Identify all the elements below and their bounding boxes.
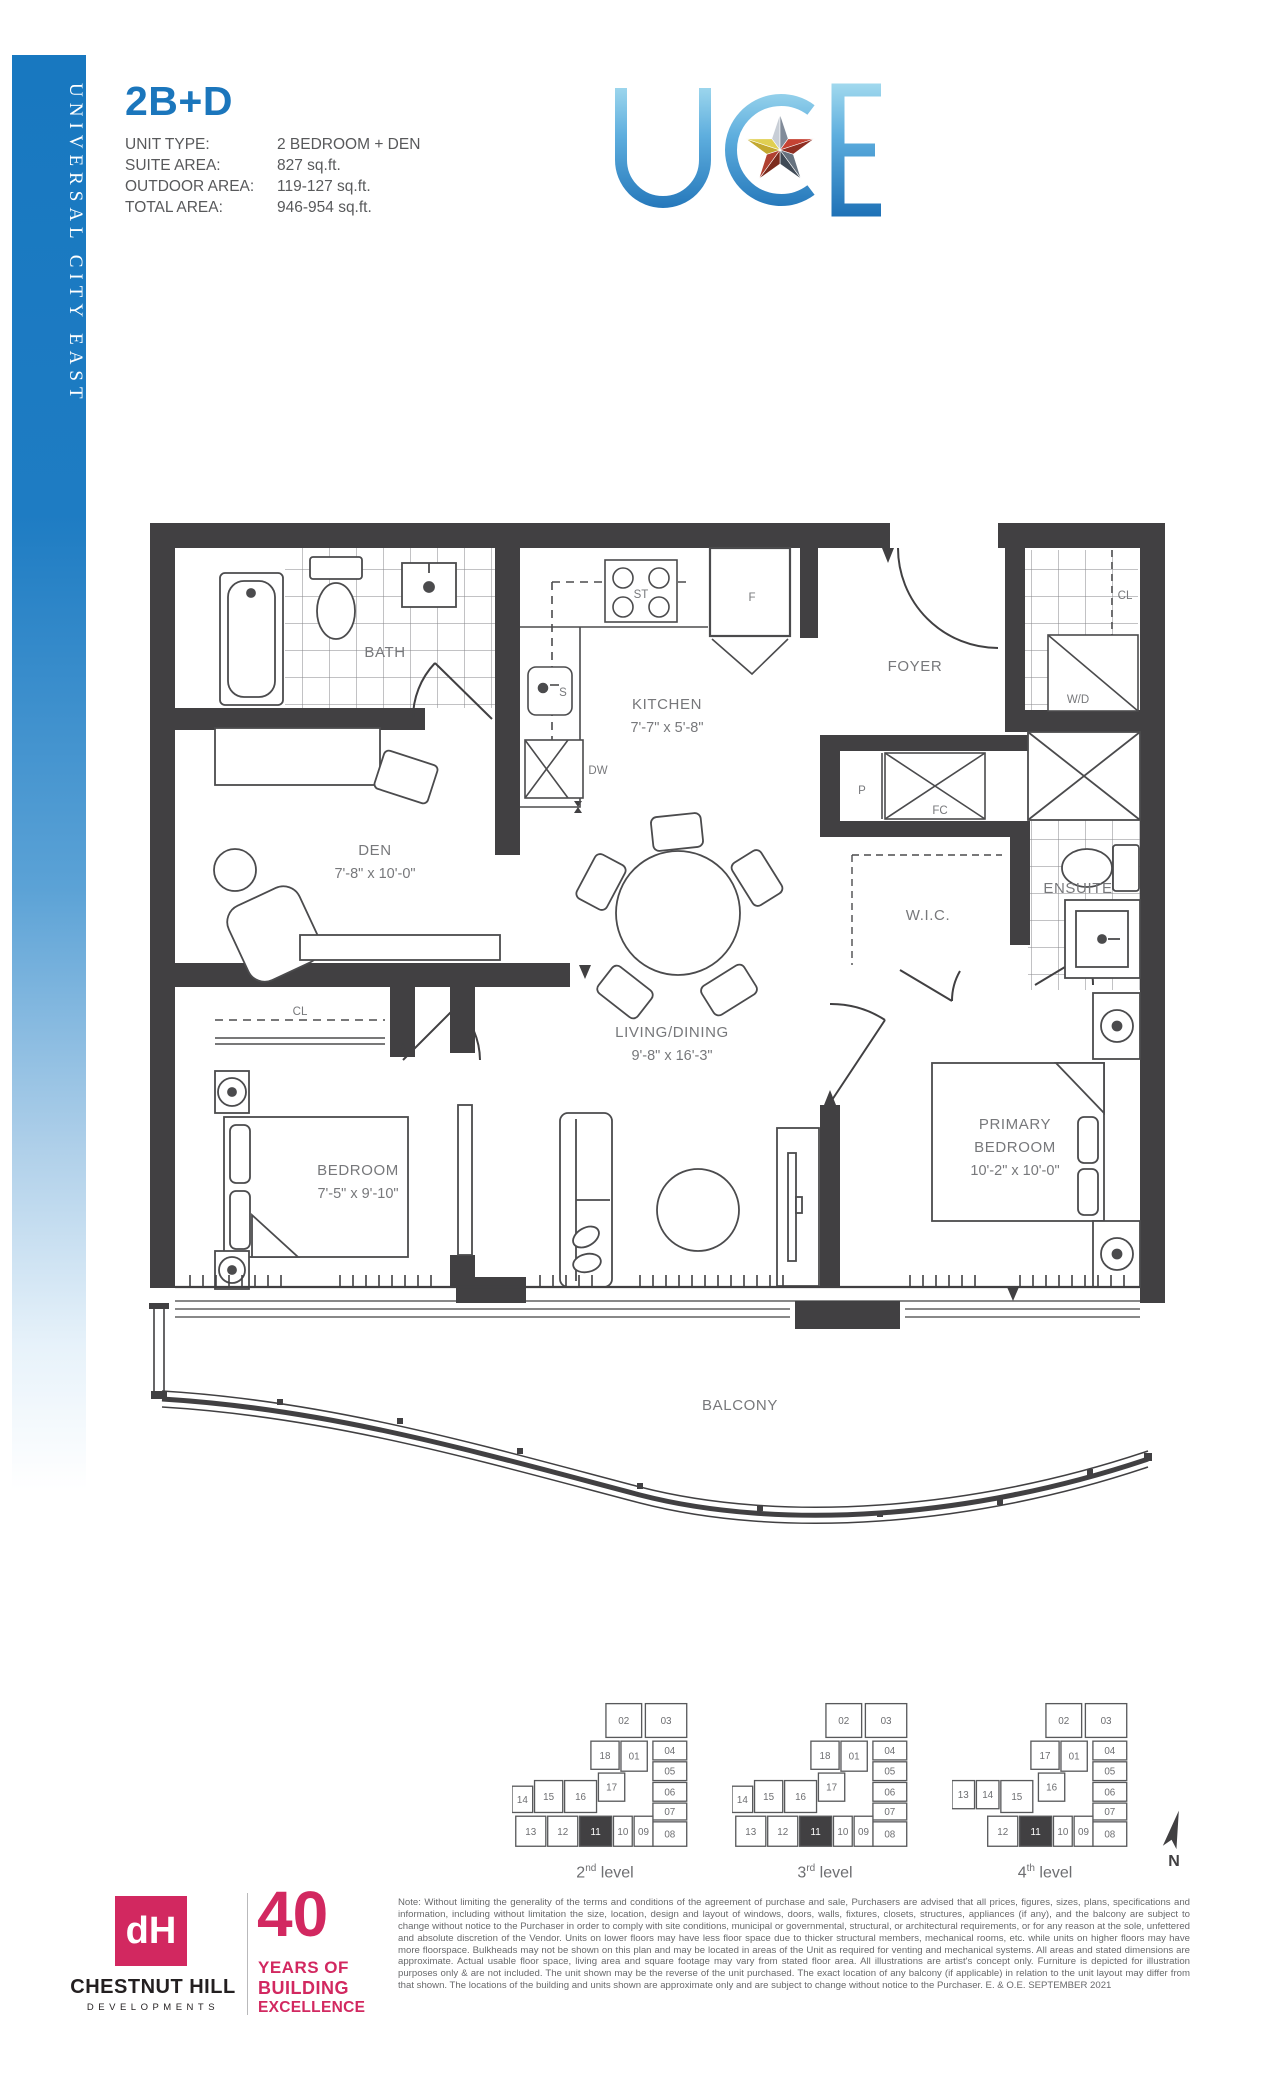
- keyplan-unit-label: 10: [837, 1827, 848, 1838]
- ensuite-label: ENSUITE: [1043, 880, 1112, 897]
- nightstand-icon: [215, 1071, 249, 1113]
- keyplan-unit-label: 03: [1101, 1716, 1112, 1727]
- keyplan-unit-label: 07: [664, 1807, 675, 1818]
- den-dims: 7'-8" x 10'-0": [334, 866, 415, 882]
- keyplan-unit-label: 13: [958, 1790, 969, 1801]
- keyplan-unit-label: 05: [664, 1767, 675, 1778]
- keyplan-unit-label: 12: [557, 1827, 568, 1838]
- balcony-rail-outer: [162, 1391, 1148, 1507]
- side-table-icon: [214, 849, 256, 891]
- keyplan-unit-label: 10: [617, 1827, 628, 1838]
- keyplan-unit-label: 06: [1104, 1787, 1115, 1798]
- stove-label: ST: [634, 589, 649, 601]
- north-label: N: [1168, 1853, 1180, 1870]
- primary-dims: 10'-2" x 10'-0": [970, 1163, 1059, 1179]
- star-icon: [746, 114, 814, 179]
- footer-divider: [247, 1893, 248, 2015]
- keyplan-unit-label: 08: [1104, 1830, 1115, 1841]
- spec-label: OUTDOOR AREA:: [125, 176, 277, 197]
- keyplan-unit-label: 12: [777, 1827, 788, 1838]
- keyplan-unit-label: 05: [884, 1767, 895, 1778]
- keyplan-map: 020304050607080118171615141312111009: [732, 1698, 918, 1850]
- keyplan-unit-label: 16: [795, 1792, 806, 1803]
- sink-label: S: [559, 687, 567, 699]
- badge-number: 40: [257, 1882, 328, 1946]
- legal-note: Note: Without limiting the generality of…: [398, 1897, 1190, 1992]
- keyplan-unit-label: 11: [810, 1827, 820, 1838]
- foyer-closet-label: CL: [1118, 590, 1133, 602]
- desk-icon: [215, 728, 380, 785]
- keyplan-unit-label: 17: [826, 1783, 837, 1794]
- keyplan-unit-label: 13: [745, 1827, 756, 1838]
- keyplan-unit-label: 15: [1011, 1792, 1022, 1803]
- keyplan-unit-label: 03: [881, 1716, 892, 1727]
- keyplan-unit-label: 16: [1046, 1783, 1057, 1794]
- floor-plan: BATH KITCHEN 7'-7" x 5'-8" FOYER CL W/D …: [140, 515, 1170, 1530]
- keyplan-unit-label: 09: [1078, 1827, 1089, 1838]
- brand-name: CHESTNUT HILL: [68, 1976, 238, 1999]
- letter-e: [838, 90, 881, 210]
- washer-dryer-icon: [1048, 635, 1138, 711]
- keyplan-unit-label: 17: [1040, 1751, 1051, 1762]
- spec-value: 946-954 sq.ft.: [277, 197, 372, 218]
- keyplan-map: 0203040506070801171615141312111009: [952, 1698, 1138, 1850]
- bedroom-dims: 7'-5" x 9'-10": [317, 1186, 398, 1202]
- north-arrow-icon: N: [1152, 1806, 1196, 1878]
- keyplan-unit-label: 02: [618, 1716, 629, 1727]
- bath-label: BATH: [364, 644, 405, 661]
- side-banner: UNIVERSAL CITY EAST: [12, 55, 86, 1490]
- dining-table-icon: [616, 851, 740, 975]
- spec-row-unit-type: UNIT TYPE: 2 BEDROOM + DEN: [125, 134, 420, 155]
- keyplan-unit-label: 04: [884, 1746, 895, 1757]
- primary-label-2: BEDROOM: [974, 1139, 1056, 1156]
- spec-value: 827 sq.ft.: [277, 155, 341, 176]
- keyplan-caption: 2nd level: [512, 1863, 698, 1882]
- spec-row-suite-area: SUITE AREA: 827 sq.ft.: [125, 155, 420, 176]
- wd-label: W/D: [1067, 694, 1089, 706]
- keyplan-unit-label: 18: [820, 1751, 831, 1762]
- nightstand-icon: [1093, 1221, 1140, 1287]
- keyplan-3rd-level: 020304050607080118171615141312111009 3rd…: [732, 1698, 918, 1882]
- bedroom-closet-label: CL: [293, 1006, 308, 1018]
- pillow: [1078, 1169, 1098, 1215]
- keyplan-caption: 3rd level: [732, 1863, 918, 1882]
- nightstand-icon: [215, 1251, 249, 1289]
- spec-row-total-area: TOTAL AREA: 946-954 sq.ft.: [125, 197, 420, 218]
- spec-row-outdoor-area: OUTDOOR AREA: 119-127 sq.ft.: [125, 176, 420, 197]
- coffee-table-icon: [657, 1169, 739, 1251]
- den-console-icon: [300, 935, 500, 960]
- spec-label: SUITE AREA:: [125, 155, 277, 176]
- badge-line-3: EXCELLENCE: [258, 1999, 365, 2017]
- spec-label: TOTAL AREA:: [125, 197, 277, 218]
- keyplan-unit-label: 02: [1058, 1716, 1069, 1727]
- badge-line-2: BUILDING: [258, 1978, 349, 1999]
- keyplan-unit-label: 11: [1030, 1827, 1040, 1838]
- kitchen-fixtures: [520, 548, 790, 807]
- bedroom-label: BEDROOM: [317, 1162, 399, 1179]
- keyplan-unit-label: 16: [575, 1792, 586, 1803]
- primary-label-1: PRIMARY: [979, 1116, 1051, 1133]
- sliding-panel: [458, 1105, 472, 1255]
- nightstand-icon: [1093, 993, 1140, 1059]
- entry-door-arc: [898, 548, 998, 648]
- pillow: [1078, 1117, 1098, 1163]
- tv-console-icon: [777, 1128, 819, 1286]
- spec-label: UNIT TYPE:: [125, 134, 277, 155]
- shower-icon: [1028, 732, 1140, 820]
- keyplan-unit-label: 01: [1069, 1752, 1080, 1763]
- balcony-posts: [277, 1399, 1093, 1517]
- keyplan-unit-label: 18: [600, 1751, 611, 1762]
- keyplan-caption: 4th level: [952, 1863, 1138, 1882]
- pillow: [230, 1125, 250, 1183]
- primary-door: [830, 1004, 885, 1103]
- vanity-icon: [1065, 900, 1140, 978]
- spec-value: 119-127 sq.ft.: [277, 176, 371, 197]
- pantry-label: P: [858, 785, 866, 797]
- pillow: [230, 1191, 250, 1249]
- wic-door: [900, 970, 960, 1001]
- keyplan-unit-label: 17: [606, 1783, 617, 1794]
- bedroom-furniture: [215, 1071, 472, 1289]
- badge-line-1: YEARS OF: [258, 1958, 349, 1978]
- keyplan-unit-label: 14: [517, 1795, 528, 1806]
- keyplan-unit-label: 14: [982, 1790, 993, 1801]
- keyplan-unit-label: 11: [590, 1827, 600, 1838]
- bedroom-closet: [215, 1020, 385, 1044]
- dishwasher-icon: [525, 740, 583, 798]
- balcony: [154, 1307, 1148, 1523]
- keyplan-unit-label: 06: [664, 1787, 675, 1798]
- keyplan-unit-label: 06: [884, 1787, 895, 1798]
- uce-letters: [621, 88, 881, 210]
- kitchen-dims: 7'-7" x 5'-8": [630, 720, 703, 736]
- fridge-label: F: [748, 592, 755, 604]
- keyplan-unit-label: 02: [838, 1716, 849, 1727]
- uce-logo: [595, 80, 895, 220]
- brand-subtitle: DEVELOPMENTS: [68, 2002, 238, 2013]
- keyplan-unit-label: 04: [664, 1746, 675, 1757]
- keyplan-unit-label: 01: [849, 1752, 860, 1763]
- foyer-label: FOYER: [888, 658, 943, 675]
- living-label: LIVING/DINING: [615, 1024, 729, 1041]
- living-dims: 9'-8" x 16'-3": [631, 1048, 712, 1064]
- brochure-page: UNIVERSAL CITY EAST 2B+D UNIT TYPE: 2 BE…: [0, 0, 1275, 2100]
- keyplan-unit-label: 09: [858, 1827, 869, 1838]
- chestnut-hill-logo: dH: [115, 1896, 187, 1966]
- fancoil-label: FC: [932, 805, 947, 817]
- den-label: DEN: [358, 842, 391, 859]
- keyplan-unit-label: 15: [543, 1792, 554, 1803]
- keyplan-unit-label: 07: [884, 1807, 895, 1818]
- balcony-label: BALCONY: [702, 1397, 778, 1414]
- balcony-rail-inner: [162, 1407, 1148, 1523]
- unit-specs: UNIT TYPE: 2 BEDROOM + DEN SUITE AREA: 8…: [125, 134, 420, 218]
- keyplan-unit-label: 01: [629, 1752, 640, 1763]
- fridge-icon: [710, 548, 790, 674]
- keyplan-unit-label: 08: [664, 1830, 675, 1841]
- plan-code-title: 2B+D: [125, 78, 233, 125]
- letter-u: [621, 88, 705, 202]
- keyplan-unit-label: 12: [997, 1827, 1008, 1838]
- balcony-rail-main: [162, 1399, 1148, 1515]
- keyplan-unit-label: 03: [661, 1716, 672, 1727]
- keyplan-unit-label: 05: [1104, 1767, 1115, 1778]
- brand-monogram: dH: [126, 1910, 177, 1953]
- keyplan-unit-label: 13: [525, 1827, 536, 1838]
- keyplan-unit-label: 09: [638, 1827, 649, 1838]
- bath-sink-icon: [402, 563, 456, 607]
- desk-chair-icon: [373, 749, 439, 804]
- keyplan-unit-label: 07: [1104, 1807, 1115, 1818]
- kitchen-label: KITCHEN: [632, 696, 702, 713]
- den-furniture: [214, 728, 500, 988]
- wic-label: W.I.C.: [906, 907, 950, 924]
- keyplan-unit-label: 10: [1057, 1827, 1068, 1838]
- sofa-icon: [560, 1113, 612, 1287]
- keyplan-unit-label: 04: [1104, 1746, 1115, 1757]
- dw-label: DW: [588, 765, 607, 777]
- keyplan-unit-label: 15: [763, 1792, 774, 1803]
- keyplan-4th-level: 0203040506070801171615141312111009 4th l…: [952, 1698, 1138, 1882]
- keyplan-map: 020304050607080118171615141312111009: [512, 1698, 698, 1850]
- keyplan-2nd-level: 020304050607080118171615141312111009 2nd…: [512, 1698, 698, 1882]
- keyplan-unit-label: 14: [737, 1795, 748, 1806]
- side-banner-text: UNIVERSAL CITY EAST: [12, 83, 86, 405]
- window-mullions: [190, 1275, 1124, 1287]
- spec-value: 2 BEDROOM + DEN: [277, 134, 420, 155]
- keyplan-unit-label: 08: [884, 1830, 895, 1841]
- window-wall: [175, 1275, 1140, 1301]
